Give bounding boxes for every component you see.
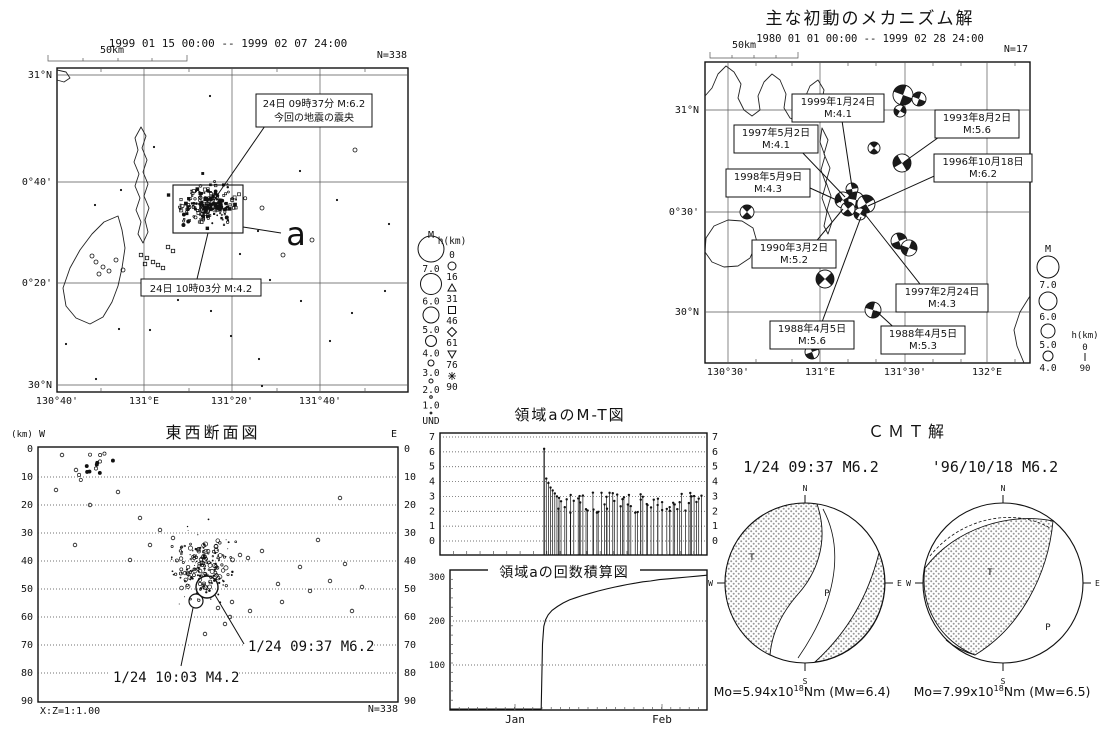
mag-tick-right: 1 [712, 521, 718, 532]
epicenter-point [182, 223, 185, 226]
depth-symbol-asterisk [448, 372, 456, 380]
hypocenter-point [95, 463, 98, 466]
callout-date: 1997年2月24日 [905, 285, 980, 298]
legend-m-value: 7.0 [1039, 280, 1056, 291]
cmt-title: ＣＭＴ解 [868, 422, 948, 441]
focal-mechanism-ball [890, 151, 915, 176]
mt-stem-dot [642, 496, 644, 498]
cumulative-axis-labels: 300200100JanFeb [429, 573, 699, 726]
mt-stem-dot [543, 448, 545, 450]
focal-mechanism-ball [890, 82, 916, 108]
month-label: Feb [652, 713, 672, 726]
mt-plot-panel: 領域aのM-T図 7766554433221100 [429, 406, 718, 555]
hypocenter-point [260, 549, 264, 553]
epicenter-point [227, 186, 229, 188]
depth-symbol-triangle [448, 284, 456, 291]
hypocenter-point [184, 596, 185, 597]
mt-plot-title: 領域aのM-T図 [514, 406, 625, 424]
mt-stem-dot [554, 492, 556, 494]
depth-tick-left: 40 [21, 556, 33, 567]
hypocenter-point [192, 574, 195, 577]
hypocenter-point [179, 603, 180, 604]
epicenter-point [225, 216, 228, 219]
epicenter-point [193, 202, 195, 204]
epicenter-point [227, 191, 229, 193]
mt-stem-dot [639, 493, 641, 495]
mt-stem-dot [678, 501, 680, 503]
cumulative-title: 領域aの回数積算図 [499, 564, 629, 581]
legend-m-value: 3.0 [422, 368, 439, 379]
depth-tick-left: 80 [21, 668, 33, 679]
mt-stem-dot [600, 492, 602, 494]
hypocenter-point [186, 569, 188, 571]
legend-m-value: 6.0 [1039, 312, 1056, 323]
map-a-lon-tick: 131°E [129, 396, 159, 407]
legend-m-value: UND [422, 416, 439, 427]
cumulative-frame [450, 570, 707, 710]
hypocenter-point [203, 567, 205, 569]
hypocenter-point [172, 570, 174, 572]
epicenter-point [300, 300, 302, 302]
hypocenter-point [225, 584, 227, 586]
hypocenter-point [343, 562, 347, 566]
hypocenter-point [187, 526, 188, 527]
map-a-callout-main-line1: 24日 09時37分 M:6.2 [263, 98, 365, 110]
map-a-legend: M7.06.05.04.03.02.01.0UNDh(km)0163146617… [418, 230, 466, 427]
depth-tick-left: 0 [27, 444, 33, 455]
hypocenter-point [171, 536, 175, 540]
month-label: Jan [505, 713, 525, 726]
epicenter-point [153, 146, 155, 148]
callout-date: 1996年10月18日 [943, 155, 1024, 168]
hypocenter-point [222, 580, 223, 581]
hypocenter-point [221, 569, 225, 573]
legend-m-value: 4.0 [422, 349, 439, 360]
epicenter-point [388, 223, 390, 225]
mt-stem-dot [650, 506, 652, 508]
focal-mechanism-ball [812, 266, 837, 291]
mt-stem-dot [545, 477, 547, 479]
hypocenter-point [77, 473, 80, 476]
focal-mechanism-ball [863, 300, 883, 320]
map-b-lat-tick: 0°30' [669, 207, 699, 218]
hypocenter-point [180, 568, 183, 571]
mt-stem-dot [630, 505, 632, 507]
mt-stem-dot [634, 511, 636, 513]
mag-tick-right: 7 [712, 432, 718, 443]
map-a-scale-label: 50km [100, 45, 124, 56]
epicenter-point [171, 249, 174, 252]
hypocenter-point [128, 558, 132, 562]
mt-stem-dot [698, 497, 700, 499]
mt-stem-dot [557, 508, 559, 510]
epicenter-point [114, 258, 118, 262]
epicenter-point [187, 206, 189, 208]
hypocenter-point [194, 565, 195, 566]
hypocenter-point [54, 488, 58, 492]
epicenter-point [90, 254, 94, 258]
hypocenter-point [224, 581, 225, 582]
epicenter-point [223, 208, 226, 211]
legend-h-header: h(km) [1071, 331, 1098, 341]
depth-symbol-square [449, 307, 456, 314]
epicenter-point [204, 192, 205, 193]
epicenter-point [213, 213, 215, 215]
depth-tick-right: 80 [404, 668, 416, 679]
mag-tick-right: 6 [712, 447, 718, 458]
cmt-1999-north-label: N [803, 484, 808, 493]
epicenter-point [166, 245, 169, 248]
hypocenter-point [171, 545, 173, 547]
hypocenter-point [148, 543, 152, 547]
epicenter-point [233, 203, 236, 206]
count-tick: 200 [429, 617, 445, 627]
epicenter-point [95, 378, 97, 380]
focal-mechanism-ball [892, 103, 908, 119]
hypocenter-point [298, 565, 302, 569]
epicenter-point [228, 207, 231, 210]
hypocenter-point [190, 558, 192, 560]
map-a-coastlines [57, 70, 149, 324]
mag-tick-right: 2 [712, 506, 718, 517]
cmt-1996-east-label: E [1095, 579, 1100, 588]
hypocenter-point [212, 555, 213, 556]
mt-stem-dot [657, 498, 659, 500]
map-a-lat-tick: 30°N [28, 380, 52, 391]
map-b-lat-tick: 31°N [675, 105, 699, 116]
callout-magnitude: M:4.1 [824, 109, 852, 120]
legend-m-value: 6.0 [422, 297, 439, 308]
region-a-leader [243, 227, 281, 233]
hypocenter-point [196, 561, 198, 563]
epicenter-point [336, 199, 338, 201]
map-b-lon-tick: 130°30' [707, 367, 749, 378]
focal-mechanism-ball [866, 140, 883, 157]
hypocenter-point [308, 589, 312, 593]
epicenter-point [214, 190, 217, 193]
epicenter-point [225, 202, 228, 205]
legend-m-symbol [430, 396, 433, 399]
mag-tick-left: 0 [429, 536, 435, 547]
mt-stem-dot [556, 495, 558, 497]
epicenter-point [191, 190, 192, 191]
cross-section-hypocenters [54, 452, 364, 636]
mt-stem-dot [551, 489, 553, 491]
epicenter-point [244, 197, 247, 200]
mag-tick-left: 6 [429, 447, 435, 458]
epicenter-point [237, 193, 240, 196]
hypocenter-point [175, 559, 178, 562]
hypocenter-point [60, 453, 64, 457]
epicenter-point [118, 328, 120, 330]
seismic-report-figure: { "colors": {"ink":"#111111","paper":"#f… [0, 0, 1115, 752]
hypocenter-point [248, 609, 252, 613]
mag-tick-left: 5 [429, 462, 435, 473]
epicenter-point [221, 214, 222, 215]
epicenter-point [101, 265, 105, 269]
mt-stem-dot [676, 508, 678, 510]
epicenter-point [204, 210, 206, 212]
hypocenter-point [208, 569, 210, 571]
callout-date: 1997年5月2日 [742, 126, 810, 139]
depth-tick-right: 30 [404, 528, 416, 539]
epicenter-point [310, 238, 314, 242]
mt-stem-dot [623, 496, 625, 498]
epicenter-point [219, 208, 222, 211]
mt-stem-dot [586, 509, 588, 511]
map-b-legend: M7.06.05.04.0h(km)090 [1037, 244, 1099, 374]
mt-stem-dot [603, 503, 605, 505]
callout-magnitude: M:5.6 [798, 336, 826, 347]
epicenter-point [191, 203, 193, 205]
map-b-lon-tick: 132°E [972, 367, 1002, 378]
map-a-callout-main-line2: 今回の地震の震央 [274, 111, 354, 124]
hypocenter-point [173, 574, 175, 576]
mt-stem-dot [606, 508, 608, 510]
mt-stem-dot [616, 493, 618, 495]
epicenter-point [97, 272, 101, 276]
epicenter-point [329, 340, 331, 342]
hypocenter-point [103, 452, 106, 455]
hypocenter-point [94, 467, 97, 470]
mag-tick-left: 4 [429, 477, 435, 488]
hypocenter-point [328, 579, 332, 583]
hypocenter-point [192, 550, 193, 551]
hypocenter-point [196, 554, 197, 555]
epicenter-point [182, 213, 185, 216]
map-a-callout-aftershock-leader [197, 233, 208, 279]
depth-tick-left: 50 [21, 584, 33, 595]
map-a-period: 1999 01 15 00:00 -- 1999 02 07 24:00 [109, 37, 347, 50]
mt-stem-dot [564, 506, 566, 508]
legend-m-symbol [1043, 351, 1053, 361]
epicenter-point [203, 188, 206, 191]
legend-m-symbol [1041, 324, 1055, 338]
depth-tick-left: 60 [21, 612, 33, 623]
hypocenter-point [210, 598, 211, 599]
hypocenter-point [197, 574, 199, 576]
hypocenter-point [200, 575, 201, 576]
mt-stem-dot [613, 500, 615, 502]
mt-stem-dot [573, 500, 575, 502]
depth-tick-left: 70 [21, 640, 33, 651]
legend-h-value: 46 [446, 316, 458, 327]
hypocenter-point [222, 584, 223, 585]
legend-m-value: 1.0 [422, 400, 439, 411]
epicenter-point [261, 385, 263, 387]
epicenter-point [187, 208, 190, 211]
epicenter-point [281, 253, 285, 257]
hypocenter-point [235, 541, 237, 543]
map-b-title: 主な初動のメカニズム解 [766, 9, 975, 29]
hypocenter-point [88, 453, 91, 456]
epicenter-point [210, 209, 212, 211]
depth-tick-right: 10 [404, 472, 416, 483]
epicenter-point [167, 194, 170, 197]
legend-m-value: 5.0 [422, 325, 439, 336]
mt-stem-dot [700, 495, 702, 497]
focal-mechanism-ball [737, 202, 757, 222]
cross-section-unit: (km) [11, 430, 33, 440]
hypocenter-point [192, 577, 194, 579]
callout-magnitude: M:4.1 [762, 140, 790, 151]
epicenter-point [65, 343, 67, 345]
hypocenter-point [228, 541, 230, 543]
map-a-lon-tick: 131°40' [299, 396, 341, 407]
hypocenter-point [215, 563, 217, 565]
mt-stem-dot [569, 494, 571, 496]
hypocenter-point [204, 565, 206, 567]
cross-section-west-label: W [39, 429, 46, 440]
callout-date: 1999年1月24日 [801, 95, 876, 108]
epicenter-point [156, 263, 159, 266]
hypocenter-point [208, 553, 209, 554]
cumulative-gridlines [450, 621, 707, 665]
hypocenter-point [202, 563, 203, 564]
cross-section-aftershock-circle [189, 594, 203, 608]
hypocenter-point [184, 578, 187, 581]
epicenter-point [181, 204, 184, 207]
epicenter-point [199, 192, 202, 195]
mt-stem-dot [558, 497, 560, 499]
mt-stem-dot [668, 506, 670, 508]
callout-magnitude: M:6.2 [969, 169, 997, 180]
epicenter-point [223, 194, 225, 196]
mt-stem-dot [666, 508, 668, 510]
callout-date: 1988年4月5日 [889, 327, 957, 340]
hypocenter-point [231, 574, 233, 576]
hypocenter-point [203, 547, 205, 549]
map-b-lat-tick: 30°N [675, 307, 699, 318]
depth-symbol-diamond [448, 328, 457, 337]
epicenter-point [212, 223, 213, 224]
mag-tick-right: 3 [712, 491, 718, 502]
mt-stem-dot [673, 503, 675, 505]
callout-magnitude: M:4.3 [754, 184, 782, 195]
epicenter-point [209, 95, 211, 97]
mag-tick-left: 7 [429, 432, 435, 443]
epicenter-point [200, 218, 202, 220]
epicenter-point [206, 227, 209, 230]
legend-h-value: 61 [446, 338, 458, 349]
mt-stem-dot [560, 500, 562, 502]
hypocenter-point [180, 577, 182, 579]
mt-stem-dot [693, 495, 695, 497]
hypocenter-point [276, 582, 280, 586]
epicenter-point [177, 299, 179, 301]
map-b-lon-tick: 131°E [805, 367, 835, 378]
cmt-1999-p-axis: P [824, 589, 830, 599]
depth-tick-right: 0 [404, 444, 410, 455]
hypocenter-point [316, 538, 320, 542]
epicenter-point [299, 170, 301, 172]
mt-stem-dot [577, 497, 579, 499]
epicenter-point [221, 217, 223, 219]
legend-h-top: 0 [1082, 343, 1087, 353]
callout-date: 1990年3月2日 [760, 241, 828, 254]
cross-section-title: 東西断面図 [165, 423, 260, 442]
mt-stem-dot [592, 491, 594, 493]
hypocenter-point [246, 556, 250, 560]
mt-stem-dot [695, 501, 697, 503]
hypocenter-point [230, 556, 232, 558]
legend-h-value: 16 [446, 272, 458, 283]
hypocenter-point [174, 573, 176, 575]
legend-m-symbol [1037, 256, 1059, 278]
map-b-period: 1980 01 01 00:00 -- 1999 02 28 24:00 [756, 33, 984, 45]
cmt-1996-title: '96/10/18 M6.2 [932, 458, 1058, 476]
hypocenter-point [214, 568, 216, 570]
callout-magnitude: M:5.2 [780, 255, 808, 266]
epicenter-point [227, 206, 229, 208]
cmt-1999-t-axis: T [749, 553, 755, 563]
hypocenter-point [171, 558, 172, 559]
epicenter-point [201, 201, 203, 203]
mt-stem-dot [565, 498, 567, 500]
epicenter-point [260, 206, 264, 210]
map-b-lon-tick: 131°30' [884, 367, 926, 378]
hypocenter-point [216, 539, 220, 543]
mt-stem-dot [578, 495, 580, 497]
hypocenter-point [230, 600, 234, 604]
legend-m-symbol [421, 274, 442, 295]
epicenter-point [258, 358, 260, 360]
hypocenter-point [216, 558, 217, 559]
depth-symbol-inverted-triangle [448, 351, 456, 358]
cmt-1996-moment: Mo=7.99x1018Nm (Mw=6.5) [914, 684, 1091, 699]
epicenter-point [384, 290, 386, 292]
epicenter-point [94, 260, 98, 264]
cmt-1999-moment: Mo=5.94x1018Nm (Mw=6.4) [714, 684, 891, 699]
map-a-lon-tick: 130°40' [36, 396, 78, 407]
depth-tick-right: 40 [404, 556, 416, 567]
cross-section-ratio: X:Z=1:1.00 [40, 706, 100, 717]
mt-stem-dot [605, 496, 607, 498]
hypocenter-point [116, 490, 120, 494]
hypocenter-point [280, 600, 284, 604]
epicenter-point [203, 208, 205, 210]
epicenter-map-panel: 1999 01 15 00:00 -- 1999 02 07 24:00 50k… [22, 37, 466, 427]
epicenter-point [194, 208, 196, 210]
mag-tick-left: 2 [429, 506, 435, 517]
epicenter-point [190, 193, 191, 194]
cmt-1996-t-axis: T [987, 568, 993, 578]
mt-stem-dot [582, 494, 584, 496]
hypocenter-point [188, 546, 192, 550]
mt-stem-dot [612, 492, 614, 494]
epicenter-point [220, 213, 221, 214]
hypocenter-point [203, 632, 207, 636]
hypocenter-point [190, 543, 192, 545]
cross-section-east-label: E [391, 429, 397, 440]
epicenter-point [210, 310, 212, 312]
depth-tick-right: 50 [404, 584, 416, 595]
cmt-panel: ＣＭＴ解 1/24 09:37 M6.2 N W E S T P Mo=5.94… [708, 422, 1100, 699]
mt-stem-dot [628, 494, 630, 496]
hypocenter-point [231, 571, 233, 573]
depth-tick-right: 90 [404, 696, 416, 707]
legend-m-symbol [428, 360, 434, 366]
epicenter-point [183, 220, 185, 222]
hypocenter-point [350, 609, 354, 613]
depth-tick-right: 20 [404, 500, 416, 511]
hypocenter-point [181, 553, 183, 555]
epicenter-point [229, 204, 231, 206]
legend-m-symbol [430, 412, 432, 414]
hypocenter-point [206, 557, 207, 558]
map-a-epicenters [65, 95, 390, 387]
mt-stem-dot [669, 510, 671, 512]
